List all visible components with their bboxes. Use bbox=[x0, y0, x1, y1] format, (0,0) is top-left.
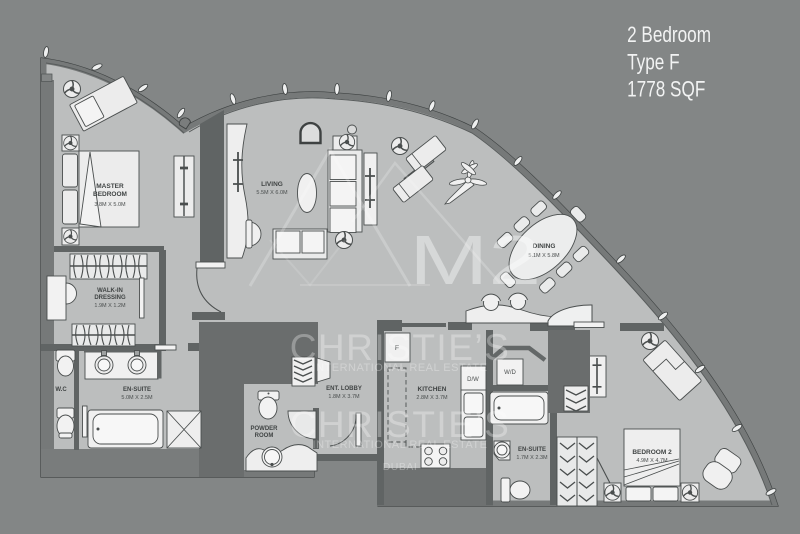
svg-text:POWDER: POWDER bbox=[251, 426, 279, 432]
svg-text:W/D: W/D bbox=[504, 370, 516, 376]
svg-text:5.5M X 6.0M: 5.5M X 6.0M bbox=[256, 190, 288, 196]
svg-text:DRESSING: DRESSING bbox=[94, 295, 126, 301]
svg-text:D/W: D/W bbox=[467, 377, 479, 383]
svg-text:1778 SQF: 1778 SQF bbox=[627, 78, 705, 103]
svg-text:3.8M X 5.0M: 3.8M X 5.0M bbox=[94, 202, 126, 208]
svg-text:INTERNATIONAL REAL ESTATE: INTERNATIONAL REAL ESTATE bbox=[313, 439, 488, 451]
svg-text:MASTER: MASTER bbox=[96, 183, 124, 190]
svg-text:EN-SUITE: EN-SUITE bbox=[123, 387, 151, 393]
svg-text:4.9M X 4.7M: 4.9M X 4.7M bbox=[636, 458, 668, 464]
svg-text:ENT. LOBBY: ENT. LOBBY bbox=[326, 386, 362, 392]
svg-text:1.8M X 3.7M: 1.8M X 3.7M bbox=[328, 394, 360, 400]
svg-text:EN-SUITE: EN-SUITE bbox=[518, 447, 546, 453]
svg-text:BEDROOM: BEDROOM bbox=[93, 191, 127, 198]
svg-text:1.9M X 1.2M: 1.9M X 1.2M bbox=[94, 303, 126, 309]
svg-text:DUBAI: DUBAI bbox=[383, 461, 418, 473]
svg-text:W.C: W.C bbox=[55, 387, 67, 393]
svg-text:WALK-IN: WALK-IN bbox=[97, 288, 123, 294]
svg-text:LIVING: LIVING bbox=[261, 181, 283, 188]
svg-text:BEDROOM 2: BEDROOM 2 bbox=[632, 449, 672, 456]
svg-text:5.0M X 2.5M: 5.0M X 2.5M bbox=[121, 395, 153, 401]
svg-text:KITCHEN: KITCHEN bbox=[418, 386, 447, 393]
svg-text:2.8M X 3.7M: 2.8M X 3.7M bbox=[416, 395, 448, 401]
svg-text:Type F: Type F bbox=[627, 51, 679, 76]
svg-text:ROOM: ROOM bbox=[255, 433, 274, 439]
svg-text:M2: M2 bbox=[409, 220, 541, 299]
svg-text:2 Bedroom: 2 Bedroom bbox=[627, 23, 711, 48]
svg-text:INTERNATIONAL REAL ESTATE: INTERNATIONAL REAL ESTATE bbox=[313, 362, 488, 374]
svg-text:1.7M X 2.3M: 1.7M X 2.3M bbox=[516, 455, 548, 461]
